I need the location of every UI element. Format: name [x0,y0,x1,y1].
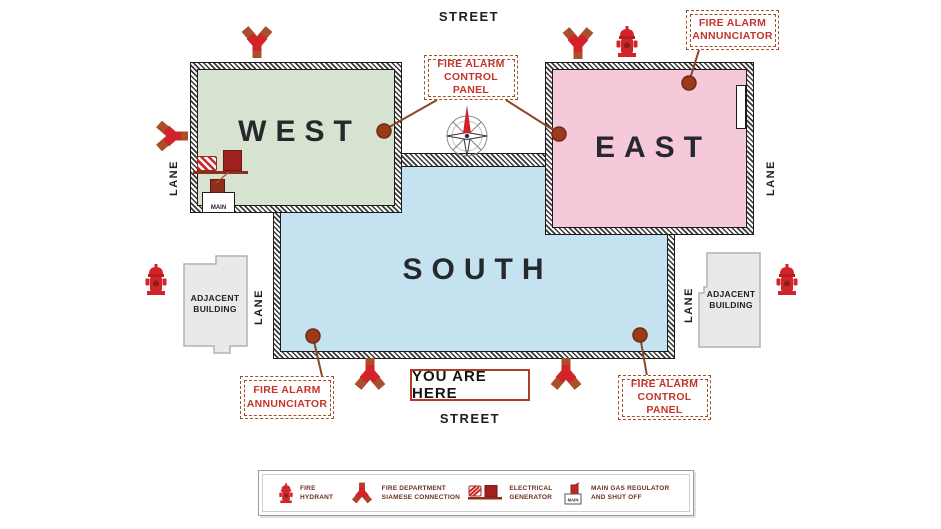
street-label-bottom: STREET [410,411,530,426]
fire-hydrant-icon [279,483,293,504]
tag-label: FIRE ALARM ANNUNCIATOR [244,380,331,416]
siamese-connection-icon [152,116,192,156]
legend-label: FIRE HYDRANT [300,484,342,502]
legend-label: ELECTRICAL GENERATOR [509,484,557,502]
legend-item-fire-hydrant: FIRE HYDRANT [279,483,342,504]
legend-item-generator: ELECTRICAL GENERATOR [468,484,557,502]
building-south-extension [399,166,547,212]
lane-label-left-inner: LANE [253,277,267,337]
east-wall-notch [736,85,746,129]
siamese-connection-icon [350,354,390,394]
street-label-top: STREET [409,9,529,24]
fire-hydrant-icon [616,26,638,58]
building-east-label: EAST [552,131,745,165]
legend: FIRE HYDRANT FIRE DEPARTMENT SIAMESE CON… [258,470,694,516]
electrical-generator-icon [468,485,502,502]
generator-box [223,150,242,171]
siamese-connection-icon [349,480,375,506]
lane-label-left-outer: LANE [168,148,182,208]
main-gas-regulator-icon: MAIN [564,482,584,505]
tag-fire-alarm-control-panel-bottom-right: FIRE ALARM CONTROL PANEL [618,375,711,420]
fire-hydrant-icon [776,264,798,296]
tag-fire-alarm-control-panel-top: FIRE ALARM CONTROL PANEL [424,55,518,100]
legend-item-siamese: FIRE DEPARTMENT SIAMESE CONNECTION [349,480,462,506]
tag-label: FIRE ALARM CONTROL PANEL [428,59,515,97]
siamese-connection-icon [546,354,586,394]
lane-label-right-outer: LANE [765,148,779,208]
legend-label: FIRE DEPARTMENT SIAMESE CONNECTION [382,484,462,502]
adjacent-building-right-label: ADJACENT BUILDING [702,289,760,312]
site-plan: WEST EAST SOUTH ADJACENT BUILDING ADJACE… [0,0,941,529]
generator-platform [193,171,248,174]
legend-label: MAIN GAS REGULATOR AND SHUT OFF [591,484,673,502]
compass-rose-icon [442,103,492,161]
tag-fire-alarm-annunciator-top-right: FIRE ALARM ANNUNCIATOR [686,10,779,50]
tag-label: FIRE ALARM ANNUNCIATOR [690,14,776,47]
legend-inner: FIRE HYDRANT FIRE DEPARTMENT SIAMESE CON… [262,474,690,512]
electrical-generator-icon [197,156,217,171]
you-are-here-marker: YOU ARE HERE [410,369,530,401]
siamese-connection-icon [558,23,598,63]
adjacent-building-left-label: ADJACENT BUILDING [186,293,244,316]
fire-hydrant-icon [145,264,167,296]
tag-fire-alarm-annunciator-bottom-left: FIRE ALARM ANNUNCIATOR [240,376,334,419]
siamese-connection-icon [237,22,277,62]
legend-main-text: MAIN [568,497,579,502]
lane-label-right-inner: LANE [683,275,697,335]
main-gas-shutoff-box: MAIN [202,192,235,213]
building-south-label: SOUTH [280,253,666,287]
you-are-here-label: YOU ARE HERE [412,368,528,402]
building-west-label: WEST [197,115,393,149]
legend-item-gas-regulator: MAIN MAIN GAS REGULATOR AND SHUT OFF [564,482,673,505]
main-gas-regulator-icon [210,179,225,193]
tag-label: FIRE ALARM CONTROL PANEL [622,379,708,417]
